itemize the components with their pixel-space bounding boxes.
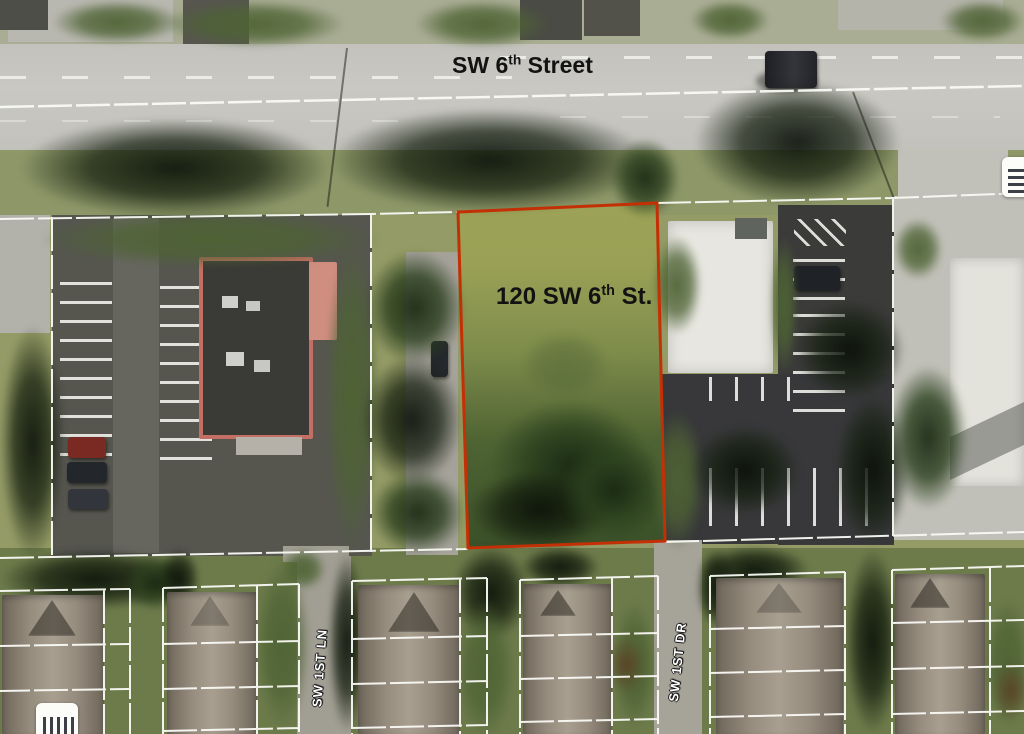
stripes-icon bbox=[36, 703, 78, 734]
subject-parcel-outline bbox=[458, 203, 665, 548]
parcel-boundary-lines bbox=[0, 0, 1024, 734]
road-name-label: SW 6th Street bbox=[452, 52, 593, 79]
aerial-map: SW 6th Street 120 SW 6th St. SW 1ST LN S… bbox=[0, 0, 1024, 734]
subject-parcel-address-label: 120 SW 6th St. bbox=[496, 283, 652, 311]
parcel-label-text: St. bbox=[615, 283, 652, 310]
stripes-icon-bars bbox=[43, 717, 74, 734]
road-label-text: Street bbox=[521, 52, 593, 78]
list-icon bbox=[1002, 157, 1024, 197]
parcel-label-text: 120 SW 6 bbox=[496, 283, 601, 310]
road-label-ordinal: th bbox=[508, 52, 521, 67]
road-label-text: SW 6 bbox=[452, 52, 508, 78]
parcel-label-ordinal: th bbox=[601, 283, 615, 299]
list-icon-bars bbox=[1008, 169, 1024, 193]
